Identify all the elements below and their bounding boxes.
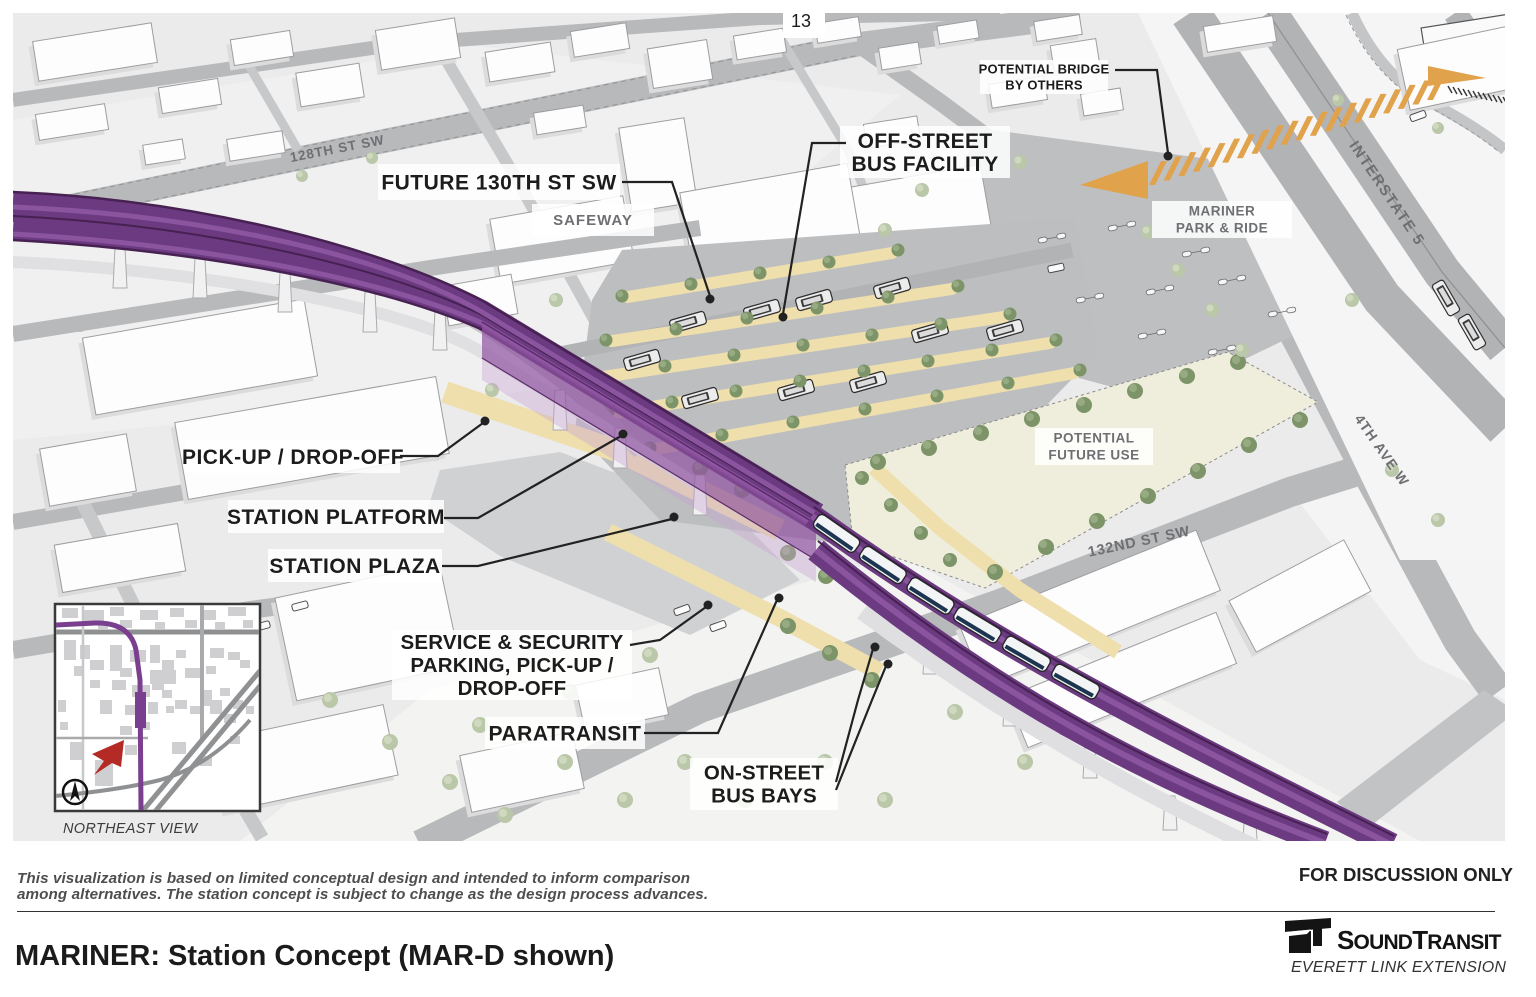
- svg-text:STATION PLATFORM: STATION PLATFORM: [227, 506, 445, 529]
- svg-text:BUS FACILITY: BUS FACILITY: [851, 153, 998, 176]
- svg-text:MARINER: MARINER: [1189, 204, 1256, 219]
- svg-text:DROP-OFF: DROP-OFF: [458, 677, 567, 700]
- svg-text:SAFEWAY: SAFEWAY: [553, 212, 633, 229]
- svg-text:PARKING, PICK-UP /: PARKING, PICK-UP /: [410, 654, 613, 677]
- svg-text:PARK & RIDE: PARK & RIDE: [1176, 221, 1268, 236]
- svg-text:OFF-STREET: OFF-STREET: [858, 130, 993, 153]
- svg-text:NORTHEAST VIEW: NORTHEAST VIEW: [63, 821, 198, 837]
- svg-text:13: 13: [791, 11, 811, 31]
- svg-text:PICK-UP / DROP-OFF: PICK-UP / DROP-OFF: [182, 446, 404, 469]
- svg-text:FUTURE 130TH ST SW: FUTURE 130TH ST SW: [381, 171, 616, 194]
- svg-text:SOUNDTRANSIT: SOUNDTRANSIT: [1337, 925, 1502, 955]
- svg-text:FUTURE USE: FUTURE USE: [1048, 448, 1139, 463]
- svg-text:POTENTIAL BRIDGE: POTENTIAL BRIDGE: [979, 62, 1110, 77]
- svg-text:STATION PLAZA: STATION PLAZA: [269, 555, 440, 578]
- svg-text:SERVICE & SECURITY: SERVICE & SECURITY: [400, 631, 623, 654]
- svg-text:BY OTHERS: BY OTHERS: [1005, 78, 1083, 93]
- svg-text:PARATRANSIT: PARATRANSIT: [489, 722, 642, 745]
- svg-text:BUS BAYS: BUS BAYS: [711, 785, 817, 808]
- svg-text:POTENTIAL: POTENTIAL: [1054, 431, 1135, 446]
- svg-text:EVERETT LINK EXTENSION: EVERETT LINK EXTENSION: [1291, 959, 1506, 976]
- svg-text:ON-STREET: ON-STREET: [704, 762, 825, 785]
